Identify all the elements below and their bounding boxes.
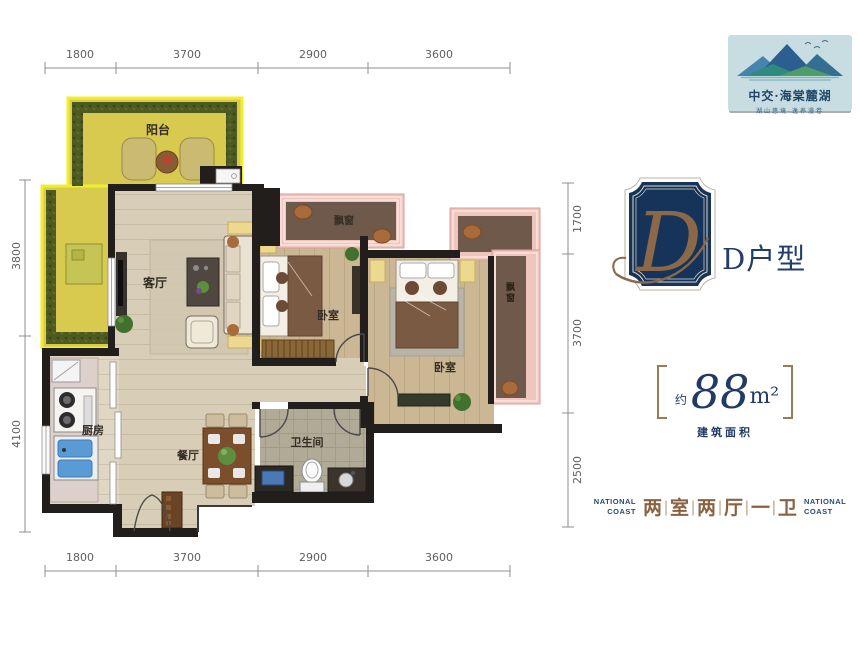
separator: | [744,498,749,516]
bed [396,260,458,348]
label-kitchen: 厨房 [82,423,104,437]
nightstand [460,260,475,282]
hedge [72,102,236,113]
hedge [46,332,110,344]
brand-logo-card: 中交·海棠麓湖 湖山悠境·逸养漫卷 [728,35,852,111]
dim-top-1: 1800 [66,48,94,61]
pillow [227,324,239,336]
label-balcony: 阳台 [146,122,170,137]
bay-window-right [492,250,540,404]
dim-right-3: 2500 [571,456,584,484]
bracket-left-icon [657,365,667,419]
hedge [72,102,83,186]
cabinet [398,394,450,406]
boundary-step [198,506,252,532]
national-coast-left: NATIONAL COAST [582,497,636,516]
dim-top-3: 2900 [299,48,327,61]
chair [229,414,247,427]
national-coast-right: NATIONAL COAST [804,497,858,516]
room-char: 一 [751,493,770,520]
dim-bottom-4: 3600 [425,551,453,564]
side-table [228,336,254,348]
dim-right-2: 3700 [571,319,584,347]
nightstand [370,260,385,282]
room-char: 两 [643,493,662,520]
area-value: 88 [691,369,750,415]
separator: | [663,498,668,516]
brand-tagline: 湖山悠境·逸养漫卷 [728,106,852,115]
label-bedroom1: 卧室 [317,308,339,322]
dim-bottom-2: 3700 [173,551,201,564]
label-bay1: 飘窗 [334,214,354,227]
pillow [428,263,454,278]
brand-name: 中交·海棠麓湖 [728,87,852,104]
area-caption: 建筑面积 [650,424,800,440]
pillow [227,236,239,248]
cushion [463,225,481,239]
cushion [294,205,312,219]
sink [54,436,98,480]
room-char: 卫 [778,493,797,520]
cabinet [352,266,361,314]
label-bathroom: 卫生间 [291,435,324,449]
chair [206,485,224,498]
cushion [373,229,391,243]
room-char: 两 [697,493,716,520]
area-unit: m² [749,384,779,409]
dim-left-2: 4100 [10,420,23,448]
label-bedroom2: 卧室 [434,360,456,374]
plant [115,315,133,333]
hedge [226,102,237,166]
mountains-logo-icon [731,38,849,82]
dim-left-1: 3800 [10,242,23,270]
hedge [46,190,56,340]
bed [260,256,322,336]
cushion [502,381,518,395]
separator: | [690,498,695,516]
separator: | [771,498,776,516]
vanity [328,468,366,492]
type-emblem: D [614,176,730,292]
dim-top-2: 3700 [173,48,201,61]
floor-plan: 1800 3700 2900 3600 1800 3700 2900 3600 … [0,0,580,645]
room-char: 厅 [724,493,743,520]
area-block: 约 88 m² [650,364,800,420]
side-table [228,222,254,234]
plant [345,247,359,261]
dim-bottom-1: 1800 [66,551,94,564]
pillow [400,263,426,278]
area-approx: 约 [675,391,687,408]
label-bay2-vertical: 飘窗 [504,282,517,304]
pillow [263,296,279,326]
label-dining: 餐厅 [176,448,199,462]
toilet [300,459,324,492]
plan-title: D户型 [722,236,806,278]
bracket-right-icon [783,365,793,419]
chair [229,485,247,498]
dim-right-1: 1700 [571,205,584,233]
room-char: 室 [670,493,689,520]
balcony-chair [122,138,156,180]
plant [453,393,471,411]
dim-bottom-3: 2900 [299,551,327,564]
layout-summary: NATIONAL COAST 两 | 室 | 两 | 厅 | 一 | 卫 NAT… [582,493,858,520]
tv-screen [262,471,284,485]
centerpiece [218,447,236,465]
rooms-summary: 两 | 室 | 两 | 厅 | 一 | 卫 [643,493,797,520]
tv [118,260,123,306]
chair [206,414,224,427]
separator: | [717,498,722,516]
dim-top-4: 3600 [425,48,453,61]
label-living: 客厅 [142,275,167,290]
wardrobe [262,340,334,358]
